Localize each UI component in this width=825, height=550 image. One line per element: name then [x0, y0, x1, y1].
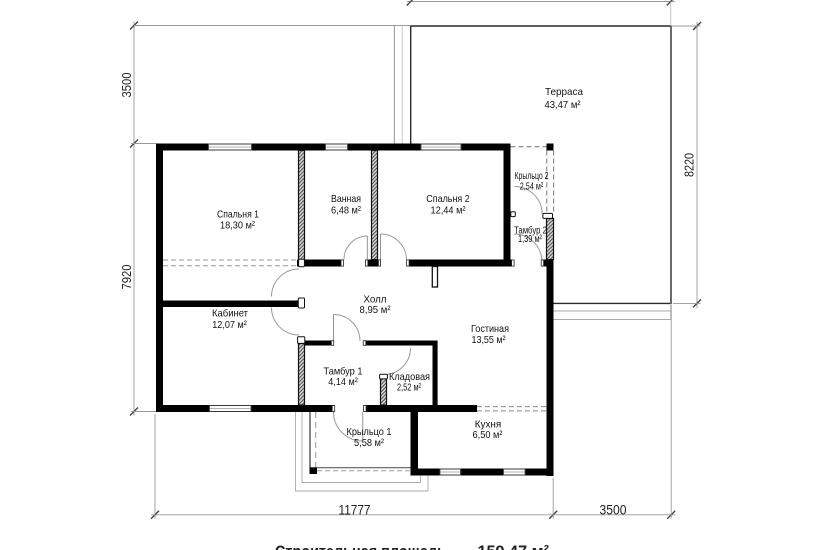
svg-text:Кухня: Кухня [475, 419, 502, 430]
svg-text:6,50 м²: 6,50 м² [473, 430, 503, 441]
svg-text:3500: 3500 [120, 72, 134, 97]
svg-text:Спальня 1: Спальня 1 [217, 210, 259, 221]
svg-text:Холл: Холл [364, 295, 387, 306]
svg-text:—: — [453, 542, 470, 550]
svg-text:1,39 м²: 1,39 м² [518, 234, 542, 245]
svg-text:6,48 м²: 6,48 м² [331, 205, 361, 216]
svg-text:Терраса: Терраса [545, 87, 583, 98]
svg-text:12,44 м²: 12,44 м² [431, 205, 466, 216]
svg-text:159,47 м²: 159,47 м² [478, 542, 550, 550]
svg-text:18,30 м²: 18,30 м² [220, 221, 255, 232]
svg-text:2,54 м²: 2,54 м² [520, 181, 544, 192]
svg-text:4,14 м²: 4,14 м² [328, 377, 358, 388]
svg-text:Кабинет: Кабинет [212, 307, 248, 319]
svg-text:13,55 м²: 13,55 м² [472, 335, 506, 346]
svg-text:Ванная: Ванная [331, 194, 361, 205]
svg-text:8220: 8220 [682, 153, 696, 177]
svg-text:2,52 м²: 2,52 м² [397, 383, 421, 394]
svg-text:12,07 м²: 12,07 м² [212, 320, 247, 331]
svg-text:3500: 3500 [600, 502, 627, 517]
svg-text:11777: 11777 [339, 502, 371, 517]
svg-text:8,95 м²: 8,95 м² [360, 305, 391, 316]
svg-text:Строительная площадь: Строительная площадь [275, 542, 446, 550]
svg-text:7920: 7920 [120, 264, 134, 289]
svg-text:Тамбур 1: Тамбур 1 [324, 365, 363, 377]
svg-text:Гостиная: Гостиная [471, 324, 509, 335]
svg-text:5,58 м²: 5,58 м² [354, 438, 384, 449]
svg-text:Крыльцо 1: Крыльцо 1 [347, 427, 392, 438]
svg-text:Крыльцо 2: Крыльцо 2 [515, 171, 549, 182]
svg-text:Спальня 2: Спальня 2 [426, 194, 470, 205]
svg-text:43,47 м²: 43,47 м² [545, 100, 581, 111]
